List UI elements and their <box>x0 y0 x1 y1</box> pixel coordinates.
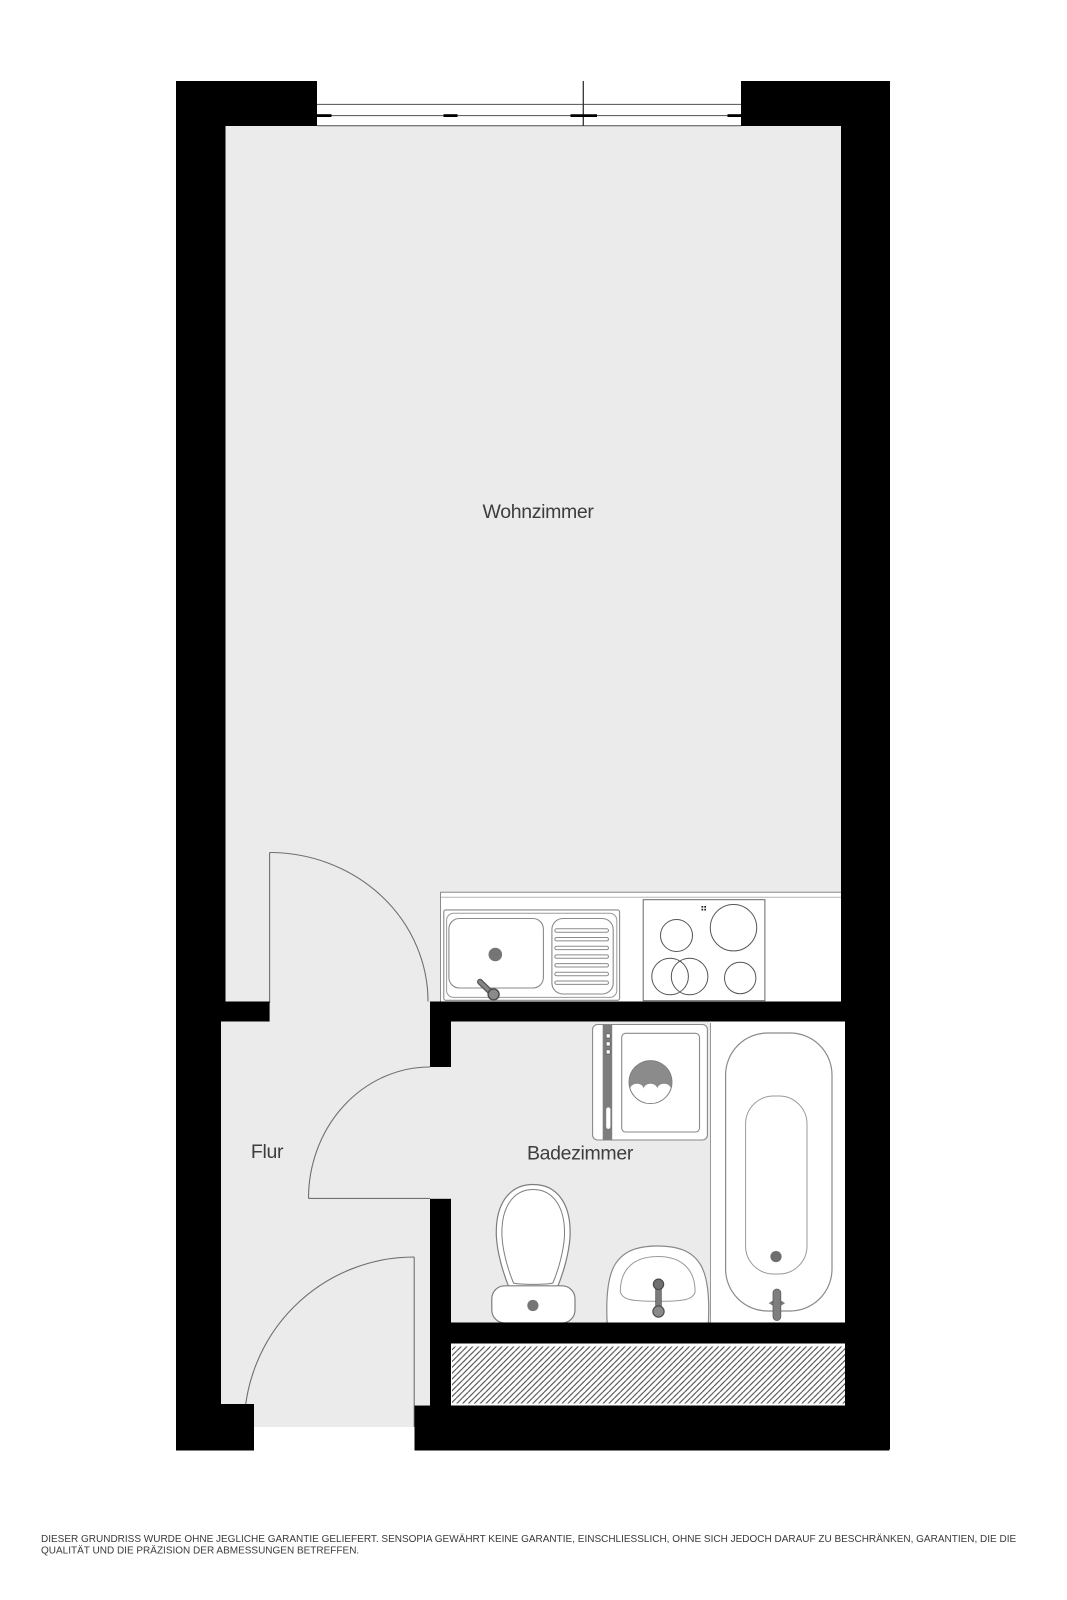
svg-text:Badezimmer: Badezimmer <box>527 1143 634 1165</box>
svg-text:Wohnzimmer: Wohnzimmer <box>483 501 595 523</box>
svg-text:DIESER GRUNDRISS WURDE OHNE JE: DIESER GRUNDRISS WURDE OHNE JEGLICHE GAR… <box>41 1533 1017 1545</box>
svg-text:QUALITÄT UND DIE PRÄZISION DER: QUALITÄT UND DIE PRÄZISION DER ABMESSUNG… <box>41 1545 359 1557</box>
svg-text:Flur: Flur <box>251 1141 284 1163</box>
